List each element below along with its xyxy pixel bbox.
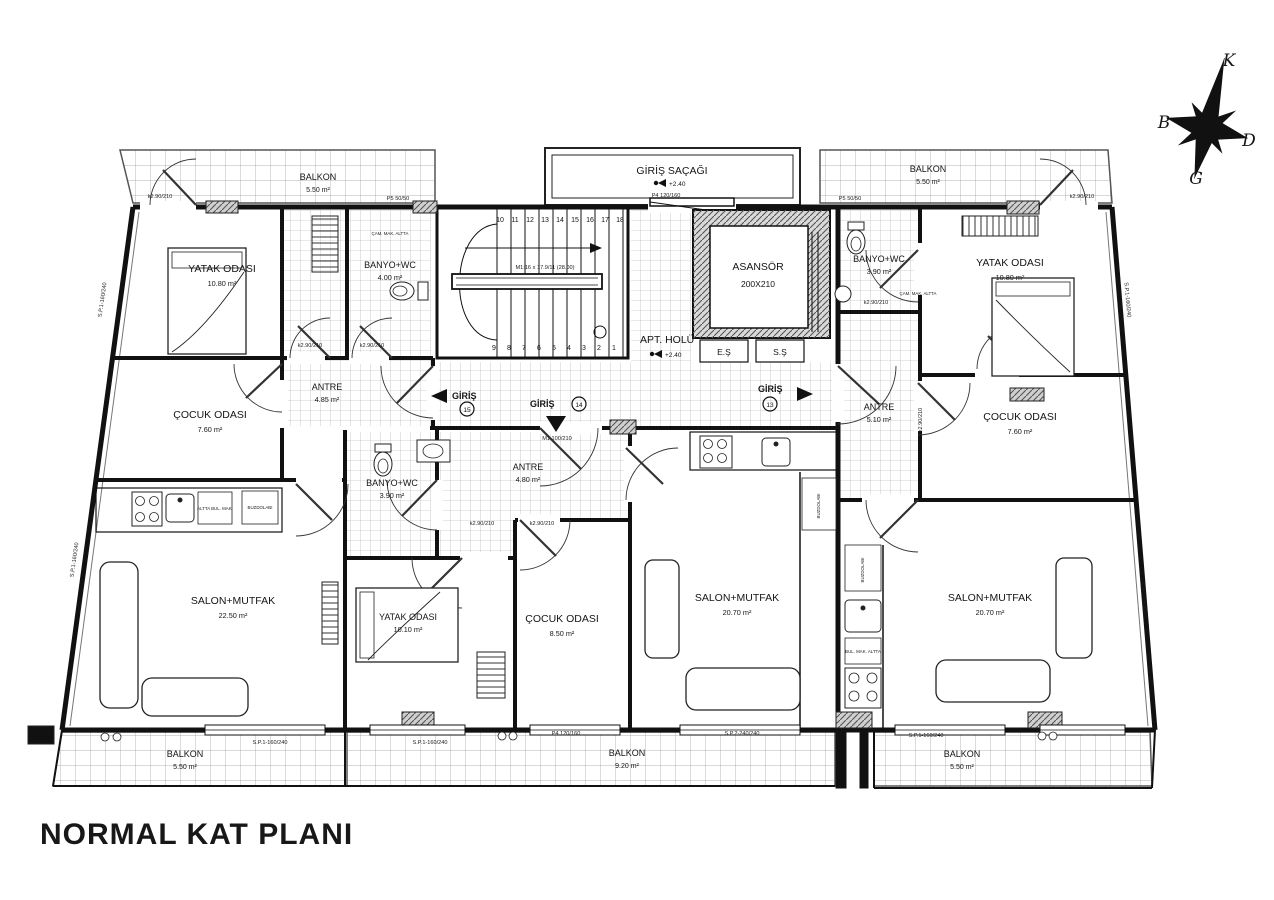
svg-text:GİRİŞ SAÇAĞI: GİRİŞ SAÇAĞI bbox=[636, 164, 707, 177]
svg-text:BALKON: BALKON bbox=[910, 164, 947, 174]
svg-text:13: 13 bbox=[541, 217, 549, 224]
svg-text:P5 50/50: P5 50/50 bbox=[839, 196, 861, 202]
svg-text:ANTRE: ANTRE bbox=[513, 462, 544, 472]
svg-text:M1 100/210: M1 100/210 bbox=[542, 436, 572, 442]
antre-left-floor bbox=[284, 360, 431, 426]
svg-text:BANYO+WC: BANYO+WC bbox=[853, 254, 905, 264]
balcony-bottom-right-floor bbox=[874, 732, 1152, 786]
svg-text:17: 17 bbox=[601, 217, 609, 224]
svg-text:BALKON: BALKON bbox=[167, 749, 204, 759]
svg-text:11: 11 bbox=[511, 217, 518, 224]
svg-text:5.10 m²: 5.10 m² bbox=[867, 415, 892, 424]
svg-text:4.00 m²: 4.00 m² bbox=[378, 273, 403, 282]
svg-text:4.80 m²: 4.80 m² bbox=[516, 475, 541, 484]
svg-text:BANYO+WC: BANYO+WC bbox=[366, 478, 418, 488]
svg-text:APT. HOLÜ: APT. HOLÜ bbox=[640, 334, 694, 346]
svg-text:13: 13 bbox=[766, 402, 774, 409]
hall-floor bbox=[437, 362, 836, 426]
svg-text:S.P.1-160/240: S.P.1-160/240 bbox=[412, 740, 447, 746]
svg-text:+2.40: +2.40 bbox=[669, 181, 686, 188]
svg-text:10.80 m²: 10.80 m² bbox=[996, 273, 1025, 282]
compass-north-label: K bbox=[1222, 51, 1237, 71]
svg-text:ÇAM. MAK. ALTTA: ÇAM. MAK. ALTTA bbox=[372, 231, 409, 236]
sink-center bbox=[417, 440, 450, 462]
svg-text:ANTRE: ANTRE bbox=[864, 402, 895, 412]
svg-text:10.10 m²: 10.10 m² bbox=[394, 625, 423, 634]
svg-text:BUZDOLABI: BUZDOLABI bbox=[816, 494, 821, 519]
svg-text:GİRİŞ: GİRİŞ bbox=[530, 399, 555, 409]
svg-text:8.50 m²: 8.50 m² bbox=[550, 629, 575, 638]
svg-text:12: 12 bbox=[526, 217, 534, 224]
plan-title: NORMAL KAT PLANI bbox=[40, 818, 353, 852]
svg-text:+2.40: +2.40 bbox=[665, 352, 682, 359]
svg-text:15: 15 bbox=[571, 217, 579, 224]
floor-plan-page: 10 11 12 13 14 15 16 17 18 9 8 7 6 5 4 3… bbox=[0, 0, 1274, 900]
svg-text:ÇOCUK ODASI: ÇOCUK ODASI bbox=[173, 409, 247, 421]
svg-text:7.60 m²: 7.60 m² bbox=[1008, 427, 1033, 436]
svg-text:BUL. MAK. ALTTA: BUL. MAK. ALTTA bbox=[845, 649, 881, 654]
svg-text:k2.90/210: k2.90/210 bbox=[864, 300, 889, 306]
svg-text:P4 120/160: P4 120/160 bbox=[652, 193, 681, 199]
detail-block bbox=[28, 726, 54, 744]
svg-text:GİRİŞ: GİRİŞ bbox=[758, 384, 783, 394]
svg-text:BALKON: BALKON bbox=[944, 749, 981, 759]
svg-text:5.50 m²: 5.50 m² bbox=[916, 179, 940, 186]
svg-text:BUZDOLABI: BUZDOLABI bbox=[248, 505, 273, 510]
svg-text:S.P.2-240/240: S.P.2-240/240 bbox=[724, 731, 759, 737]
svg-text:14: 14 bbox=[575, 402, 583, 409]
compass-south-label: G bbox=[1189, 169, 1203, 189]
svg-text:4.85 m²: 4.85 m² bbox=[315, 395, 340, 404]
svg-text:18: 18 bbox=[616, 217, 624, 224]
svg-text:k2.90/210: k2.90/210 bbox=[298, 343, 323, 349]
svg-text:E.Ş: E.Ş bbox=[717, 347, 731, 357]
svg-text:BALKON: BALKON bbox=[609, 748, 646, 758]
elevator-shaft: ASANSÖR 200X210 bbox=[693, 210, 830, 338]
svg-text:YATAK ODASI: YATAK ODASI bbox=[379, 612, 437, 622]
svg-text:22.50 m²: 22.50 m² bbox=[219, 611, 248, 620]
toilet-left bbox=[390, 282, 428, 300]
svg-text:ÇAM. MAK. ALTTA: ÇAM. MAK. ALTTA bbox=[900, 291, 937, 296]
svg-text:1: 1 bbox=[612, 345, 616, 352]
svg-text:9: 9 bbox=[492, 345, 496, 352]
svg-text:P4 120/160: P4 120/160 bbox=[552, 731, 581, 737]
bed-right bbox=[992, 278, 1074, 376]
svg-text:5: 5 bbox=[552, 345, 556, 352]
svg-text:k2.90/210: k2.90/210 bbox=[530, 521, 555, 527]
svg-text:k2.90/210: k2.90/210 bbox=[470, 521, 495, 527]
svg-text:10: 10 bbox=[496, 217, 504, 224]
floor-plan-svg: 10 11 12 13 14 15 16 17 18 9 8 7 6 5 4 3… bbox=[0, 0, 1274, 900]
radiator bbox=[322, 582, 338, 644]
svg-text:16: 16 bbox=[586, 217, 594, 224]
svg-text:YATAK ODASI: YATAK ODASI bbox=[188, 263, 256, 275]
svg-text:5.50 m²: 5.50 m² bbox=[306, 187, 330, 194]
svg-text:ANTRE: ANTRE bbox=[312, 382, 343, 392]
svg-text:SALON+MUTFAK: SALON+MUTFAK bbox=[695, 592, 779, 604]
svg-text:4: 4 bbox=[567, 345, 571, 352]
svg-text:S.P.1-160/240: S.P.1-160/240 bbox=[252, 740, 287, 746]
svg-text:YATAK ODASI: YATAK ODASI bbox=[976, 257, 1044, 269]
svg-text:3: 3 bbox=[582, 345, 586, 352]
svg-text:BANYO+WC: BANYO+WC bbox=[364, 260, 416, 270]
svg-text:5.50 m²: 5.50 m² bbox=[950, 764, 974, 771]
compass-rose: K B D G bbox=[1151, 47, 1269, 189]
svg-text:ALTTA BUL. MAK.: ALTTA BUL. MAK. bbox=[197, 506, 233, 511]
svg-text:5.50 m²: 5.50 m² bbox=[173, 764, 197, 771]
svg-text:SALON+MUTFAK: SALON+MUTFAK bbox=[948, 592, 1032, 604]
svg-text:20.70 m²: 20.70 m² bbox=[976, 608, 1005, 617]
svg-text:ASANSÖR: ASANSÖR bbox=[732, 261, 784, 273]
sink-right bbox=[835, 286, 851, 302]
svg-text:14: 14 bbox=[556, 217, 564, 224]
svg-text:ÇOCUK ODASI: ÇOCUK ODASI bbox=[525, 613, 599, 625]
svg-text:GİRİŞ: GİRİŞ bbox=[452, 391, 477, 401]
svg-text:7.60 m²: 7.60 m² bbox=[198, 425, 223, 434]
svg-text:3.90 m²: 3.90 m² bbox=[867, 267, 892, 276]
svg-text:BUZDOLABI: BUZDOLABI bbox=[860, 558, 865, 583]
svg-text:S.P.1-160/240: S.P.1-160/240 bbox=[1122, 282, 1131, 317]
svg-text:10.80 m²: 10.80 m² bbox=[208, 279, 237, 288]
compass-west-label: B bbox=[1157, 113, 1171, 133]
svg-text:20.70 m²: 20.70 m² bbox=[723, 608, 752, 617]
balcony-bottom-left-floor bbox=[53, 732, 345, 786]
svg-text:ÇOCUK ODASI: ÇOCUK ODASI bbox=[983, 411, 1057, 423]
compass-east-label: D bbox=[1241, 131, 1256, 151]
svg-text:k2.90/210: k2.90/210 bbox=[148, 194, 173, 200]
svg-text:200X210: 200X210 bbox=[741, 279, 775, 289]
svg-text:8: 8 bbox=[507, 345, 511, 352]
svg-text:3.90 m²: 3.90 m² bbox=[380, 491, 405, 500]
svg-text:7: 7 bbox=[522, 345, 526, 352]
svg-text:2: 2 bbox=[597, 345, 601, 352]
svg-text:P5 50/50: P5 50/50 bbox=[387, 196, 409, 202]
svg-text:SALON+MUTFAK: SALON+MUTFAK bbox=[191, 595, 275, 607]
svg-text:k2.90/210: k2.90/210 bbox=[360, 343, 385, 349]
radiator bbox=[312, 216, 338, 272]
svg-text:S.P.1-160/240: S.P.1-160/240 bbox=[98, 282, 109, 318]
svg-text:BALKON: BALKON bbox=[300, 172, 337, 182]
toilet-center bbox=[374, 444, 392, 476]
svg-text:15: 15 bbox=[463, 407, 471, 414]
radiator bbox=[962, 216, 1038, 236]
radiator bbox=[477, 652, 505, 698]
svg-text:S.P.1-160/240: S.P.1-160/240 bbox=[70, 542, 81, 578]
svg-text:k2.90/210: k2.90/210 bbox=[1070, 194, 1095, 200]
svg-text:S.P.1-160/240: S.P.1-160/240 bbox=[908, 733, 943, 739]
svg-text:S.Ş: S.Ş bbox=[773, 347, 787, 357]
svg-text:k2.90/210: k2.90/210 bbox=[918, 408, 924, 433]
svg-text:9.20 m²: 9.20 m² bbox=[615, 763, 639, 770]
svg-text:M1:16 x 17.9/11 (28.00): M1:16 x 17.9/11 (28.00) bbox=[516, 265, 575, 271]
svg-text:6: 6 bbox=[537, 345, 541, 352]
